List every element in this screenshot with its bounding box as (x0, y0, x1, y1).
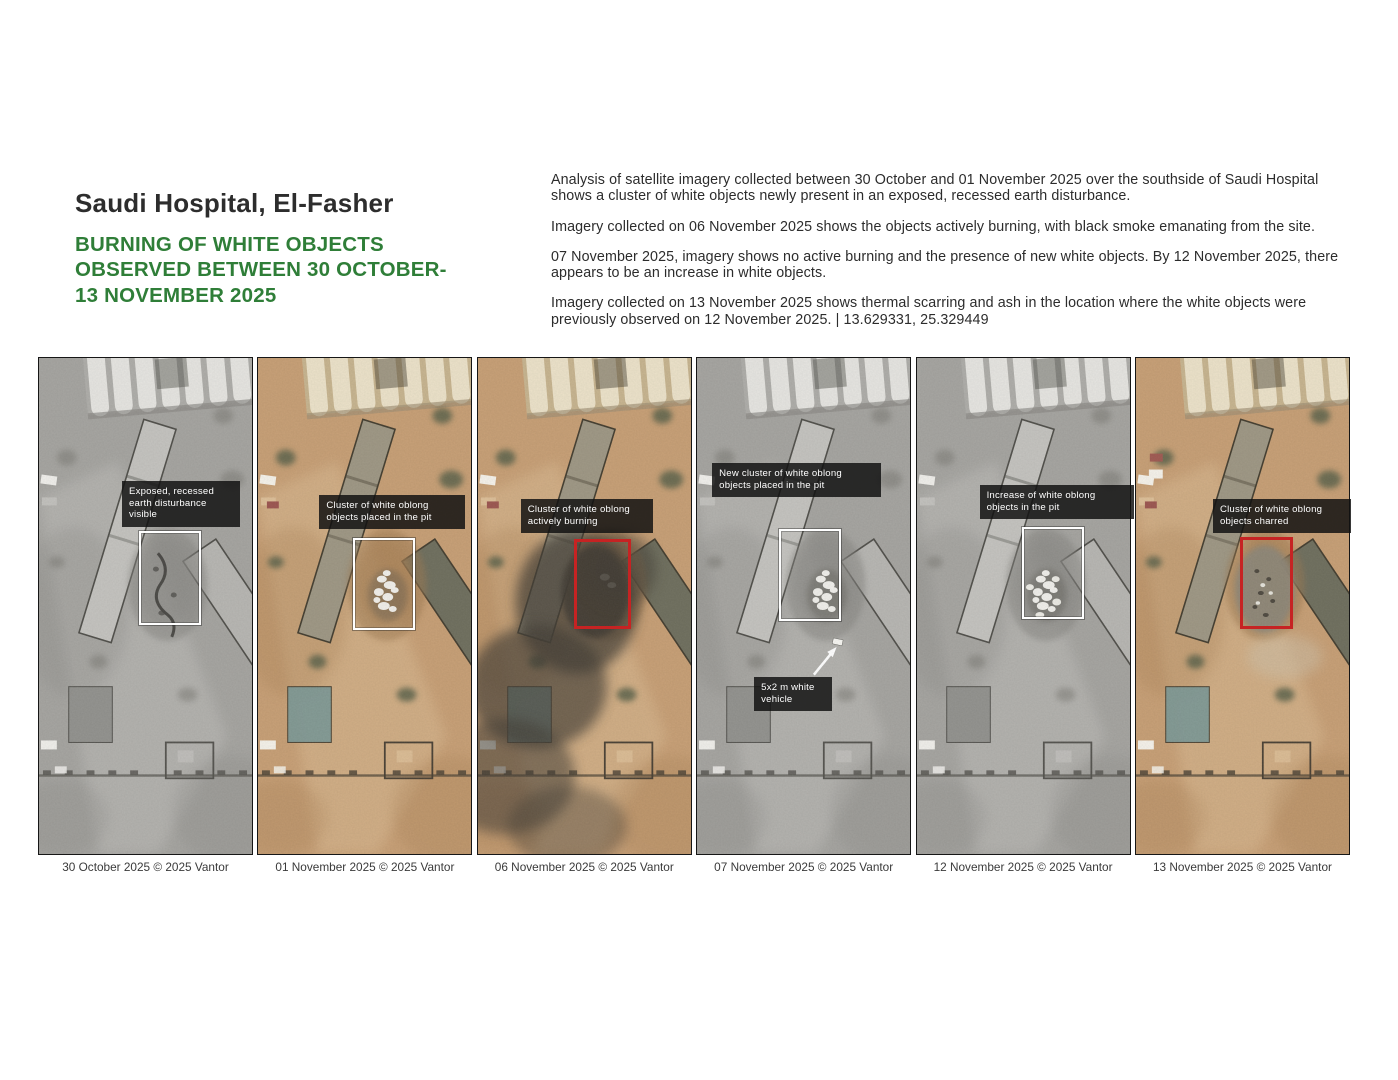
satellite-image (38, 357, 253, 855)
annotation-label: New cluster of white oblong objects plac… (712, 463, 881, 497)
report-page: Saudi Hospital, El-Fasher BURNING OF WHI… (0, 0, 1398, 1080)
satellite-panel-30-oct: Exposed, recessed earth disturbance visi… (38, 357, 253, 877)
annotation-label: Exposed, recessed earth disturbance visi… (122, 481, 240, 527)
image-caption: 30 October 2025 © 2025 Vantor (32, 860, 259, 874)
page-subtitle: BURNING OF WHITE OBJECTS OBSERVED BETWEE… (75, 232, 515, 308)
image-caption: 12 November 2025 © 2025 Vantor (910, 860, 1137, 874)
satellite-panel-06-nov: Cluster of white oblong actively burning… (477, 357, 692, 877)
subtitle-line: OBSERVED BETWEEN 30 OCTOBER- (75, 257, 515, 282)
image-caption: 07 November 2025 © 2025 Vantor (690, 860, 917, 874)
satellite-image (916, 357, 1131, 855)
analysis-paragraph-coordinates: Imagery collected on 13 November 2025 sh… (551, 295, 1359, 328)
analysis-paragraph: 07 November 2025, imagery shows no activ… (551, 249, 1359, 282)
image-caption: 13 November 2025 © 2025 Vantor (1129, 860, 1356, 874)
image-caption: 06 November 2025 © 2025 Vantor (471, 860, 698, 874)
title-block: Saudi Hospital, El-Fasher BURNING OF WHI… (75, 188, 515, 308)
annotation-label: Cluster of white oblong objects placed i… (319, 495, 465, 529)
satellite-panel-07-nov: New cluster of white oblong objects plac… (696, 357, 911, 877)
subtitle-line: BURNING OF WHITE OBJECTS (75, 232, 515, 257)
analysis-paragraph: Imagery collected on 06 November 2025 sh… (551, 219, 1359, 235)
page-title: Saudi Hospital, El-Fasher (75, 188, 515, 219)
annotation-label: Cluster of white oblong objects charred (1213, 499, 1351, 533)
annotation-label-vehicle: 5x2 m white vehicle (754, 677, 832, 711)
satellite-panel-01-nov: Cluster of white oblong objects placed i… (257, 357, 472, 877)
satellite-panel-13-nov: Cluster of white oblong objects charred … (1135, 357, 1350, 877)
imagery-strip: Exposed, recessed earth disturbance visi… (38, 357, 1350, 877)
satellite-image (1135, 357, 1350, 855)
image-caption: 01 November 2025 © 2025 Vantor (251, 860, 478, 874)
annotation-label: Cluster of white oblong actively burning (521, 499, 653, 533)
analysis-paragraph: Analysis of satellite imagery collected … (551, 172, 1359, 205)
annotation-label: Increase of white oblong objects in the … (980, 485, 1134, 519)
subtitle-line: 13 NOVEMBER 2025 (75, 283, 515, 308)
analysis-text-block: Analysis of satellite imagery collected … (551, 172, 1359, 342)
satellite-image (696, 357, 911, 855)
satellite-image (477, 357, 692, 855)
satellite-image (257, 357, 472, 855)
satellite-panel-12-nov: Increase of white oblong objects in the … (916, 357, 1131, 877)
